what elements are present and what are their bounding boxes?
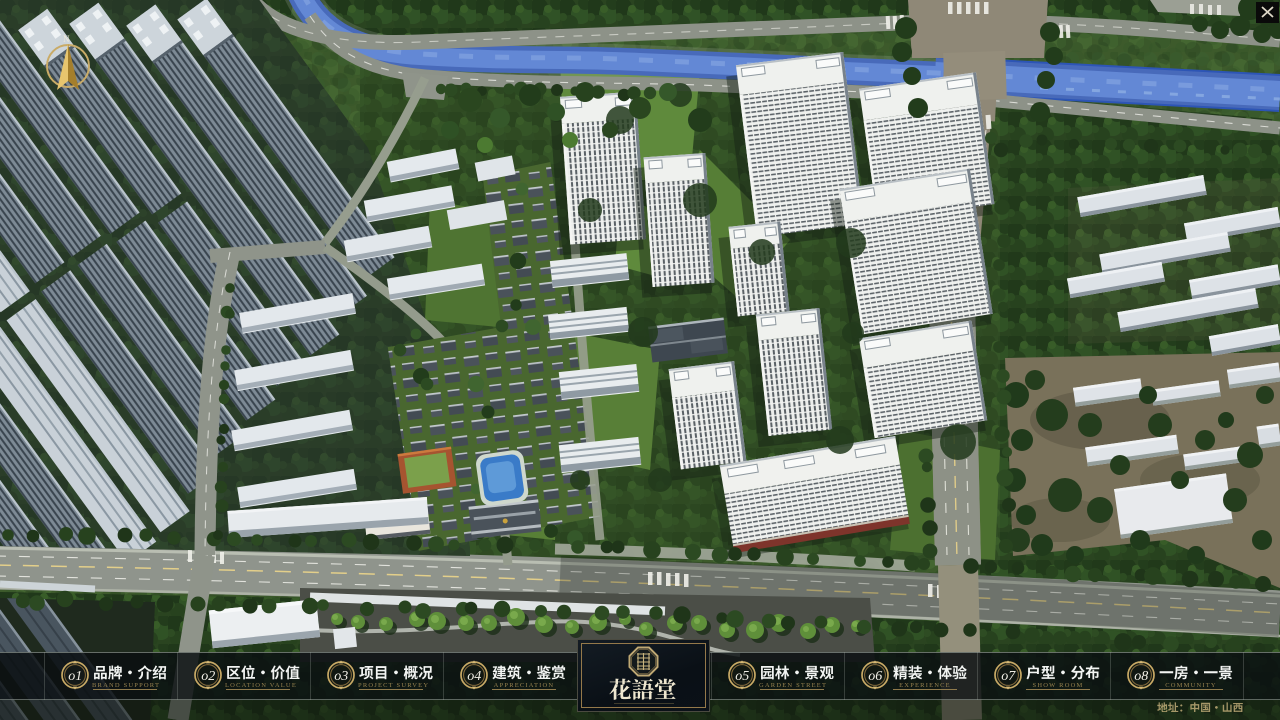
svg-text:o4: o4 <box>467 669 481 684</box>
svg-text:o5: o5 <box>735 669 749 684</box>
svg-text:o1: o1 <box>68 669 82 684</box>
svg-text:o8: o8 <box>1134 669 1148 684</box>
svg-text:N: N <box>63 34 70 44</box>
svg-text:o3: o3 <box>334 669 348 684</box>
svg-text:o7: o7 <box>1001 669 1016 684</box>
svg-text:o6: o6 <box>868 669 882 684</box>
svg-text:o2: o2 <box>201 669 215 684</box>
